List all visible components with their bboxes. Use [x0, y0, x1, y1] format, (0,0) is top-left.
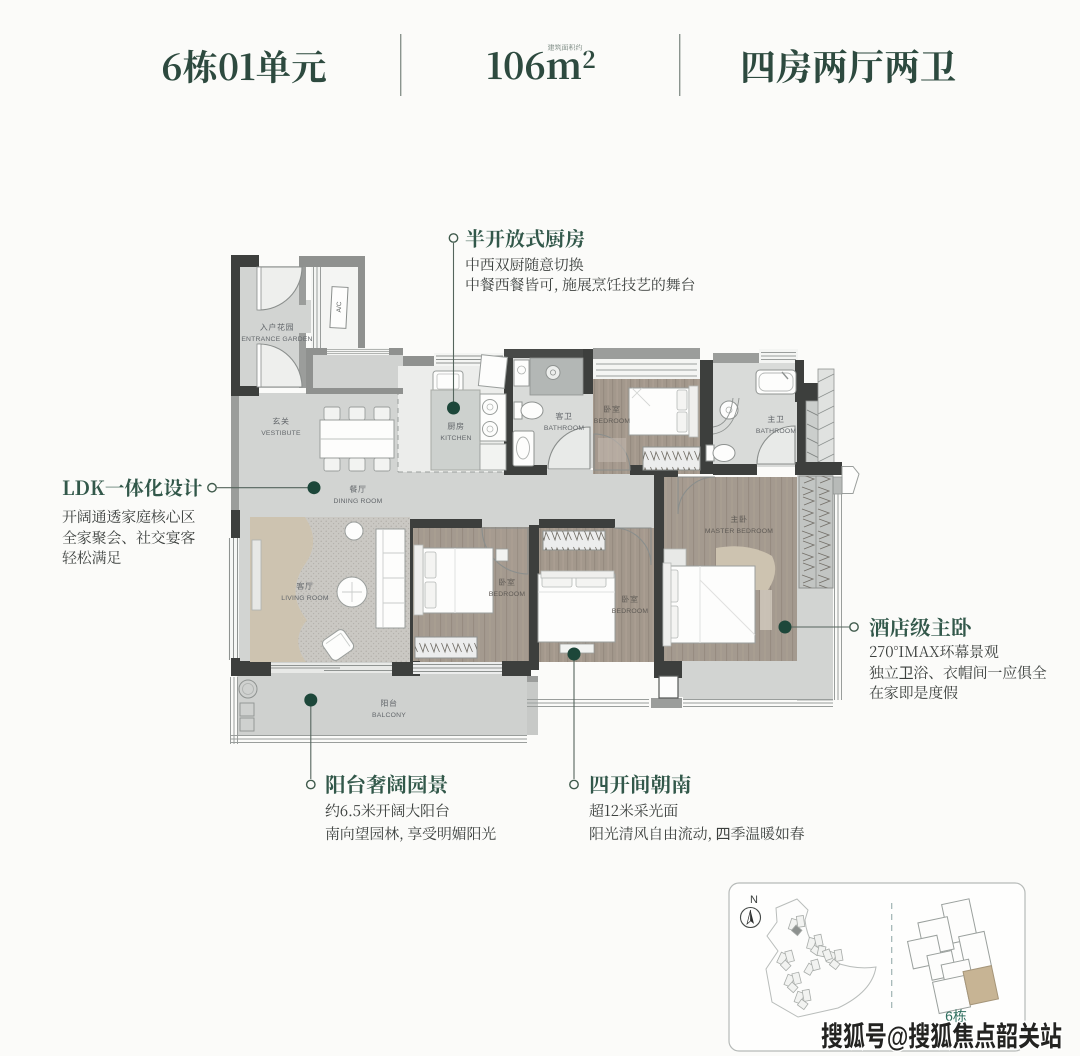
svg-text:阳台奢阔园景: 阳台奢阔园景: [325, 768, 448, 798]
svg-text:6栋01单元: 6栋01单元: [161, 40, 326, 91]
svg-text:搜狐号@搜狐焦点韶关站: 搜狐号@搜狐焦点韶关站: [821, 1021, 1062, 1052]
svg-text:约6.5米开阔大阳台: 约6.5米开阔大阳台: [325, 800, 450, 821]
svg-text:LIVING ROOM: LIVING ROOM: [281, 595, 329, 602]
svg-text:中餐西餐皆可, 施展烹饪技艺的舞台: 中餐西餐皆可, 施展烹饪技艺的舞台: [465, 274, 695, 295]
svg-text:玄关: 玄关: [272, 417, 289, 426]
svg-text:餐厅: 餐厅: [349, 485, 366, 494]
svg-text:独立卫浴、衣帽间一应俱全: 独立卫浴、衣帽间一应俱全: [869, 662, 1047, 683]
svg-text:VESTIBUTE: VESTIBUTE: [261, 430, 301, 437]
svg-text:阳光清风自由流动, 四季温暖如春: 阳光清风自由流动, 四季温暖如春: [589, 823, 805, 844]
svg-text:BALCONY: BALCONY: [372, 712, 406, 719]
svg-text:A/C: A/C: [336, 301, 344, 312]
svg-text:全家聚会、社交宴客: 全家聚会、社交宴客: [62, 527, 195, 548]
svg-text:主卧: 主卧: [730, 515, 747, 524]
svg-text:BEDROOM: BEDROOM: [612, 608, 649, 615]
svg-text:中西双厨随意切换: 中西双厨随意切换: [465, 254, 584, 275]
svg-text:KITCHEN: KITCHEN: [440, 435, 471, 442]
svg-text:BEDROOM: BEDROOM: [594, 418, 631, 425]
svg-text:卧室: 卧室: [621, 595, 638, 604]
svg-text:BEDROOM: BEDROOM: [489, 591, 526, 598]
svg-text:BATHROOM: BATHROOM: [756, 428, 797, 435]
svg-text:半开放式厨房: 半开放式厨房: [465, 223, 585, 252]
svg-text:主卫: 主卫: [767, 415, 784, 424]
svg-text:N: N: [750, 894, 758, 906]
svg-text:厨房: 厨房: [447, 422, 464, 431]
svg-text:四房两厅两卫: 四房两厅两卫: [740, 40, 956, 91]
svg-text:卧室: 卧室: [498, 578, 515, 587]
svg-text:建筑面积约: 建筑面积约: [548, 43, 583, 53]
svg-text:LDK一体化设计: LDK一体化设计: [62, 473, 203, 501]
svg-text:四开间朝南: 四开间朝南: [589, 768, 692, 798]
svg-text:入户花园: 入户花园: [260, 323, 294, 332]
svg-text:在家即是度假: 在家即是度假: [869, 682, 958, 703]
svg-text:BATHROOM: BATHROOM: [544, 425, 585, 432]
svg-text:客卫: 客卫: [555, 412, 572, 421]
svg-text:ENTRANCE GARDEN: ENTRANCE GARDEN: [241, 336, 312, 343]
svg-text:阳台: 阳台: [380, 699, 397, 708]
svg-text:客厅: 客厅: [296, 582, 313, 591]
svg-text:轻松满足: 轻松满足: [62, 547, 121, 568]
svg-text:开阔通透家庭核心区: 开阔通透家庭核心区: [62, 506, 195, 527]
svg-text:270°IMAX环幕景观: 270°IMAX环幕景观: [869, 641, 999, 662]
svg-text:南向望园林, 享受明媚阳光: 南向望园林, 享受明媚阳光: [325, 823, 496, 844]
svg-text:超12米采光面: 超12米采光面: [589, 800, 678, 821]
svg-text:MASTER BEDROOM: MASTER BEDROOM: [705, 528, 773, 535]
svg-text:酒店级主卧: 酒店级主卧: [869, 611, 973, 641]
svg-text:DINING ROOM: DINING ROOM: [333, 498, 382, 505]
svg-text:卧室: 卧室: [603, 405, 620, 414]
